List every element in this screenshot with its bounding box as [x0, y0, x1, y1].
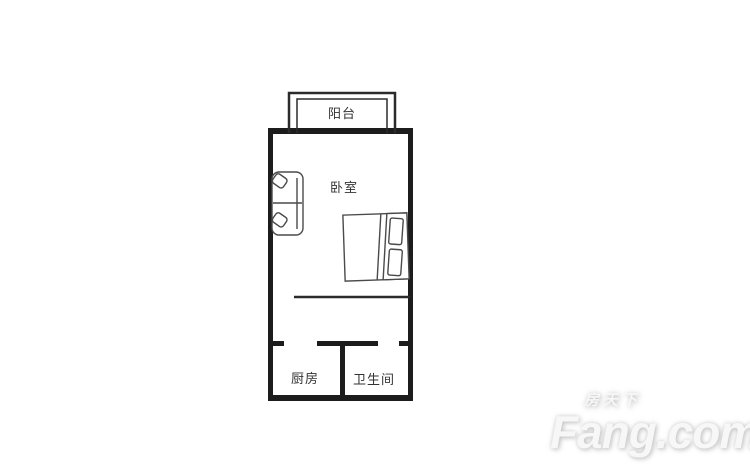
wall-mid-segment-right [399, 341, 408, 346]
wall-kitchen-bathroom-partition [340, 341, 345, 395]
bedroom-label: 卧室 [330, 180, 358, 195]
floorplan-screenshot: 阳台 卧室 厨房 卫生间 房天下 Fang.com [0, 0, 750, 474]
bathroom-label: 卫生间 [353, 372, 395, 387]
balcony-label: 阳台 [328, 106, 356, 121]
wall-bottom [268, 395, 413, 401]
fang-watermark: 房天下 Fang.com [550, 393, 750, 455]
watermark-logo-text: Fang.com [550, 409, 750, 455]
wall-mid-segment-left [273, 341, 284, 346]
wall-left [268, 128, 273, 401]
wall-mid-segment-center [317, 341, 378, 346]
kitchen-label: 厨房 [291, 371, 319, 386]
sofa-icon [271, 172, 303, 235]
bed-icon [343, 213, 409, 281]
